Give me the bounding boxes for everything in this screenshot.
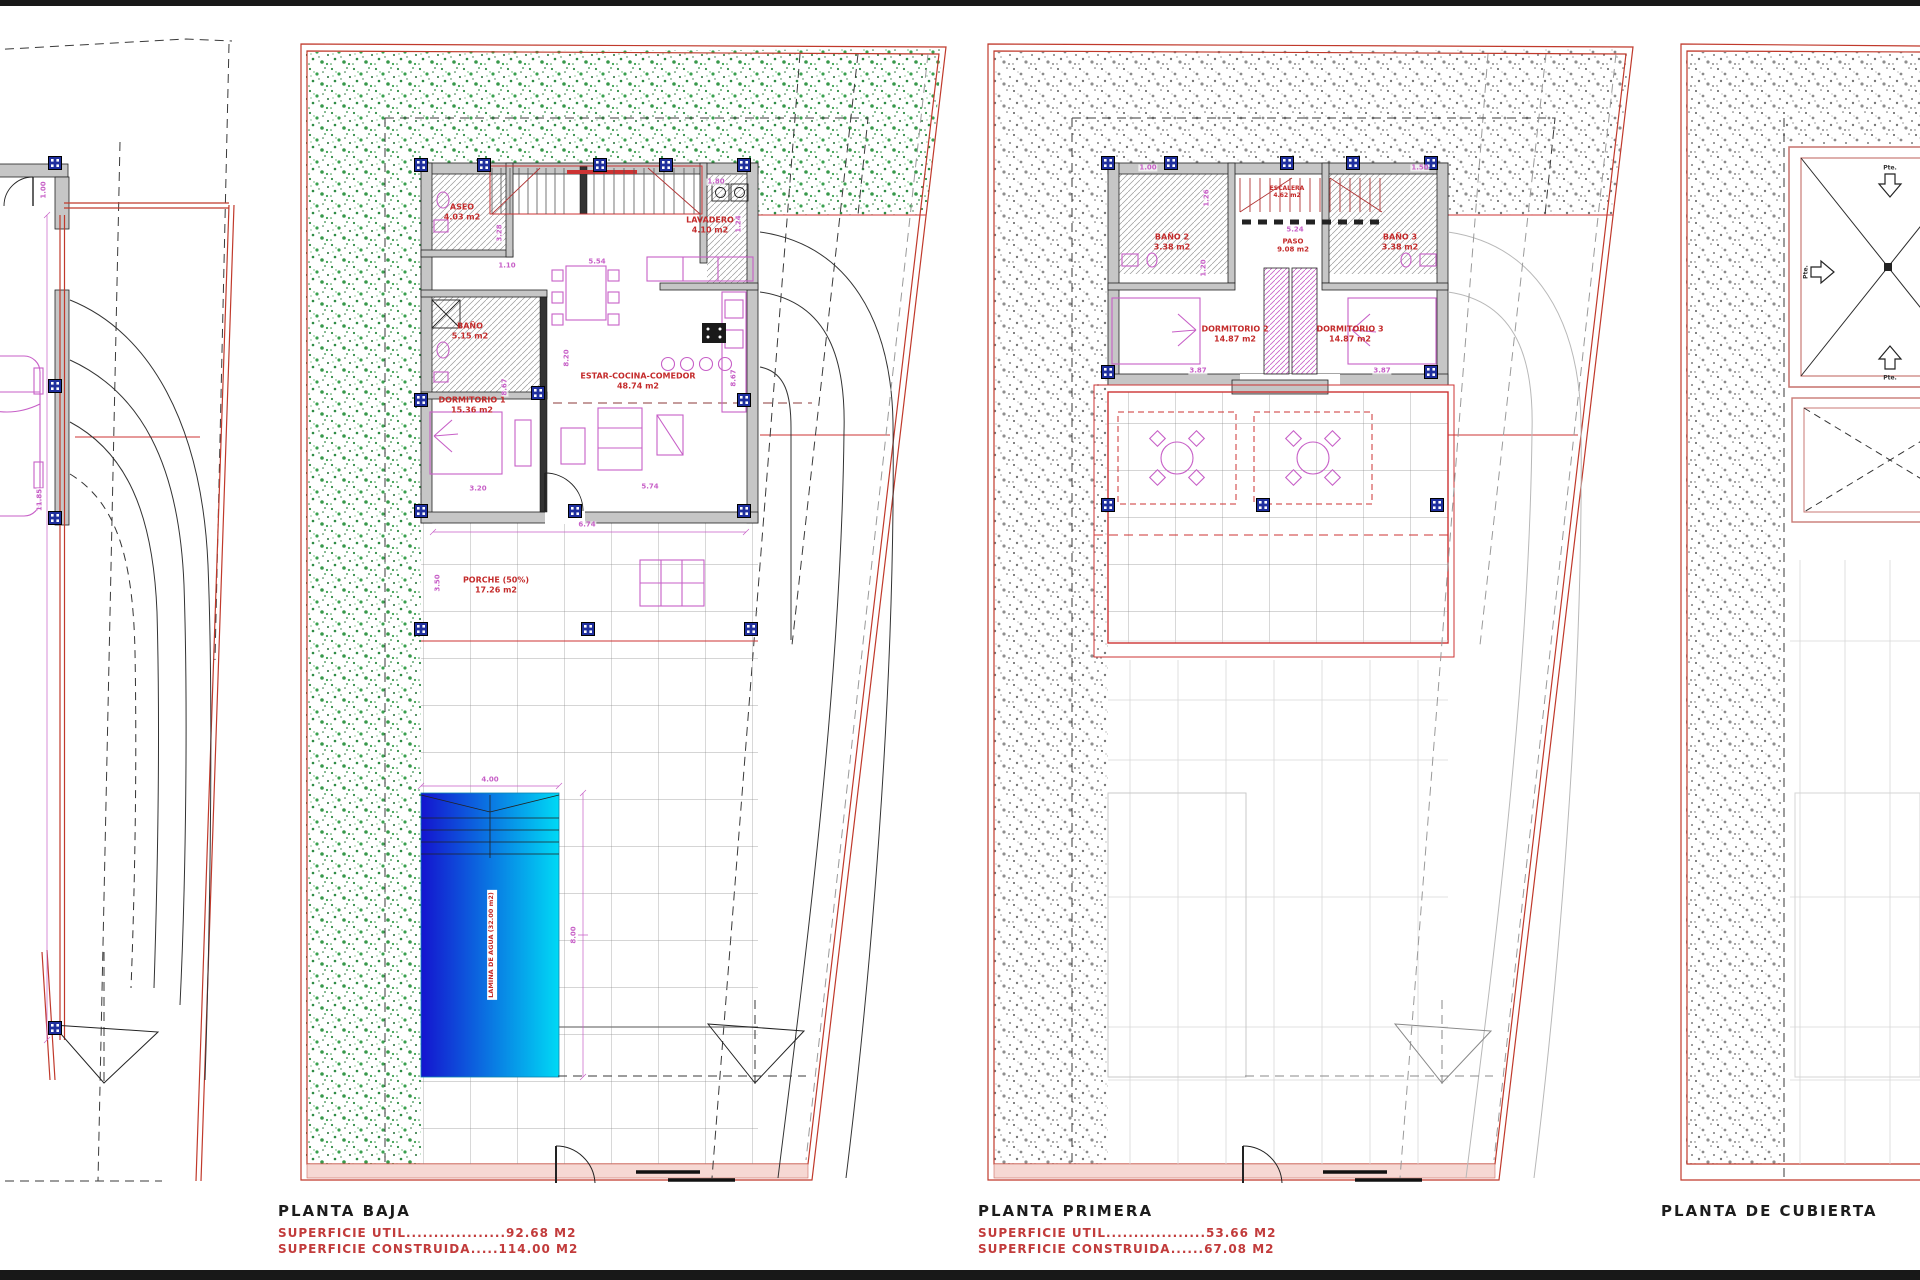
architectural-drawing-sheet: ASEO4.03 m2 LAVADERO4.10 m2 BAÑO5.15 m2 … (0, 0, 1920, 1280)
room-label-bano2: BAÑO 23.38 m2 (1154, 232, 1190, 251)
sheet-bottom-border (0, 1270, 1920, 1280)
room-label-bano: BAÑO5.15 m2 (452, 321, 488, 340)
dim-label: 6.74 (577, 522, 596, 529)
superficie-util-baja: SUPERFICIE UTIL..................92.68 M… (278, 1226, 576, 1240)
dim-label: 11.85 (37, 488, 44, 512)
floorplan-linework (0, 0, 1920, 1280)
room-label-paso: PASO9.08 m2 (1277, 238, 1309, 255)
dim-label: 8.67 (731, 368, 738, 387)
dim-label: 1.00 (1138, 165, 1157, 172)
dim-label: 1.10 (497, 263, 516, 270)
terrace (1094, 385, 1454, 657)
dim-label: 1.00 (41, 180, 48, 199)
dim-label: 5.54 (587, 259, 606, 266)
dim-label: 3.87 (1188, 368, 1207, 375)
superficie-construida-baja: SUPERFICIE CONSTRUIDA.....114.00 M2 (278, 1242, 578, 1256)
room-label-dormitorio2: DORMITORIO 214.87 m2 (1201, 324, 1268, 343)
room-label-dormitorio3: DORMITORIO 314.87 m2 (1316, 324, 1383, 343)
panel-site-plan (0, 39, 234, 1181)
dim-label: 5.74 (640, 484, 659, 491)
room-label-estar-cocina-comedor: ESTAR-COCINA-COMEDOR48.74 m2 (580, 371, 695, 390)
dim-label: 1.26 (1204, 188, 1211, 207)
dim-label: 8.67 (502, 377, 509, 396)
roof-slope-label: Pte. (1883, 375, 1897, 382)
room-label-lavadero: LAVADERO4.10 m2 (686, 215, 734, 234)
dim-label: 3.50 (435, 573, 442, 592)
room-label-escalera: ESCALERA4.62 m2 (1270, 185, 1305, 199)
dim-label: 3.28 (497, 223, 504, 242)
superficie-util-primera: SUPERFICIE UTIL..................53.66 M… (978, 1226, 1276, 1240)
dim-label: 1.50 (1410, 165, 1429, 172)
sheet-top-border (0, 0, 1920, 6)
title-planta-primera: PLANTA PRIMERA (978, 1202, 1153, 1220)
room-label-dormitorio1: DORMITORIO 115.36 m2 (438, 395, 505, 414)
panel-planta-baja (301, 44, 946, 1183)
dim-label: 8.00 (571, 925, 578, 944)
dim-label: 1.20 (1201, 258, 1208, 277)
panel-planta-primera (988, 44, 1633, 1183)
roof-slope-label: Pte. (1883, 165, 1897, 172)
title-planta-baja: PLANTA BAJA (278, 1202, 411, 1220)
dim-label: 1.80 (706, 179, 725, 186)
room-label-porche: PORCHE (50%)17.26 m2 (463, 575, 529, 594)
title-planta-cubierta: PLANTA DE CUBIERTA (1661, 1202, 1878, 1220)
room-label-aseo: ASEO4.03 m2 (444, 202, 480, 221)
dim-label: 8.20 (564, 348, 571, 367)
dim-label: 1.24 (736, 214, 743, 233)
pool-label: LAMINA DE AGUA (32.00 m2) (487, 890, 497, 1000)
superficie-construida-primera: SUPERFICIE CONSTRUIDA......67.08 M2 (978, 1242, 1275, 1256)
room-label-bano3: BAÑO 33.38 m2 (1382, 232, 1418, 251)
dim-label: 5.24 (1285, 227, 1304, 234)
roof-terrace-void (1792, 398, 1920, 522)
roof-slope-label: Pte. (1803, 265, 1810, 279)
dim-label: 3.87 (1372, 368, 1391, 375)
dim-label: 4.00 (480, 777, 499, 784)
panel-planta-cubierta (1681, 44, 1920, 1180)
lower-ghost (1790, 560, 1920, 1164)
dim-label: 3.20 (468, 486, 487, 493)
